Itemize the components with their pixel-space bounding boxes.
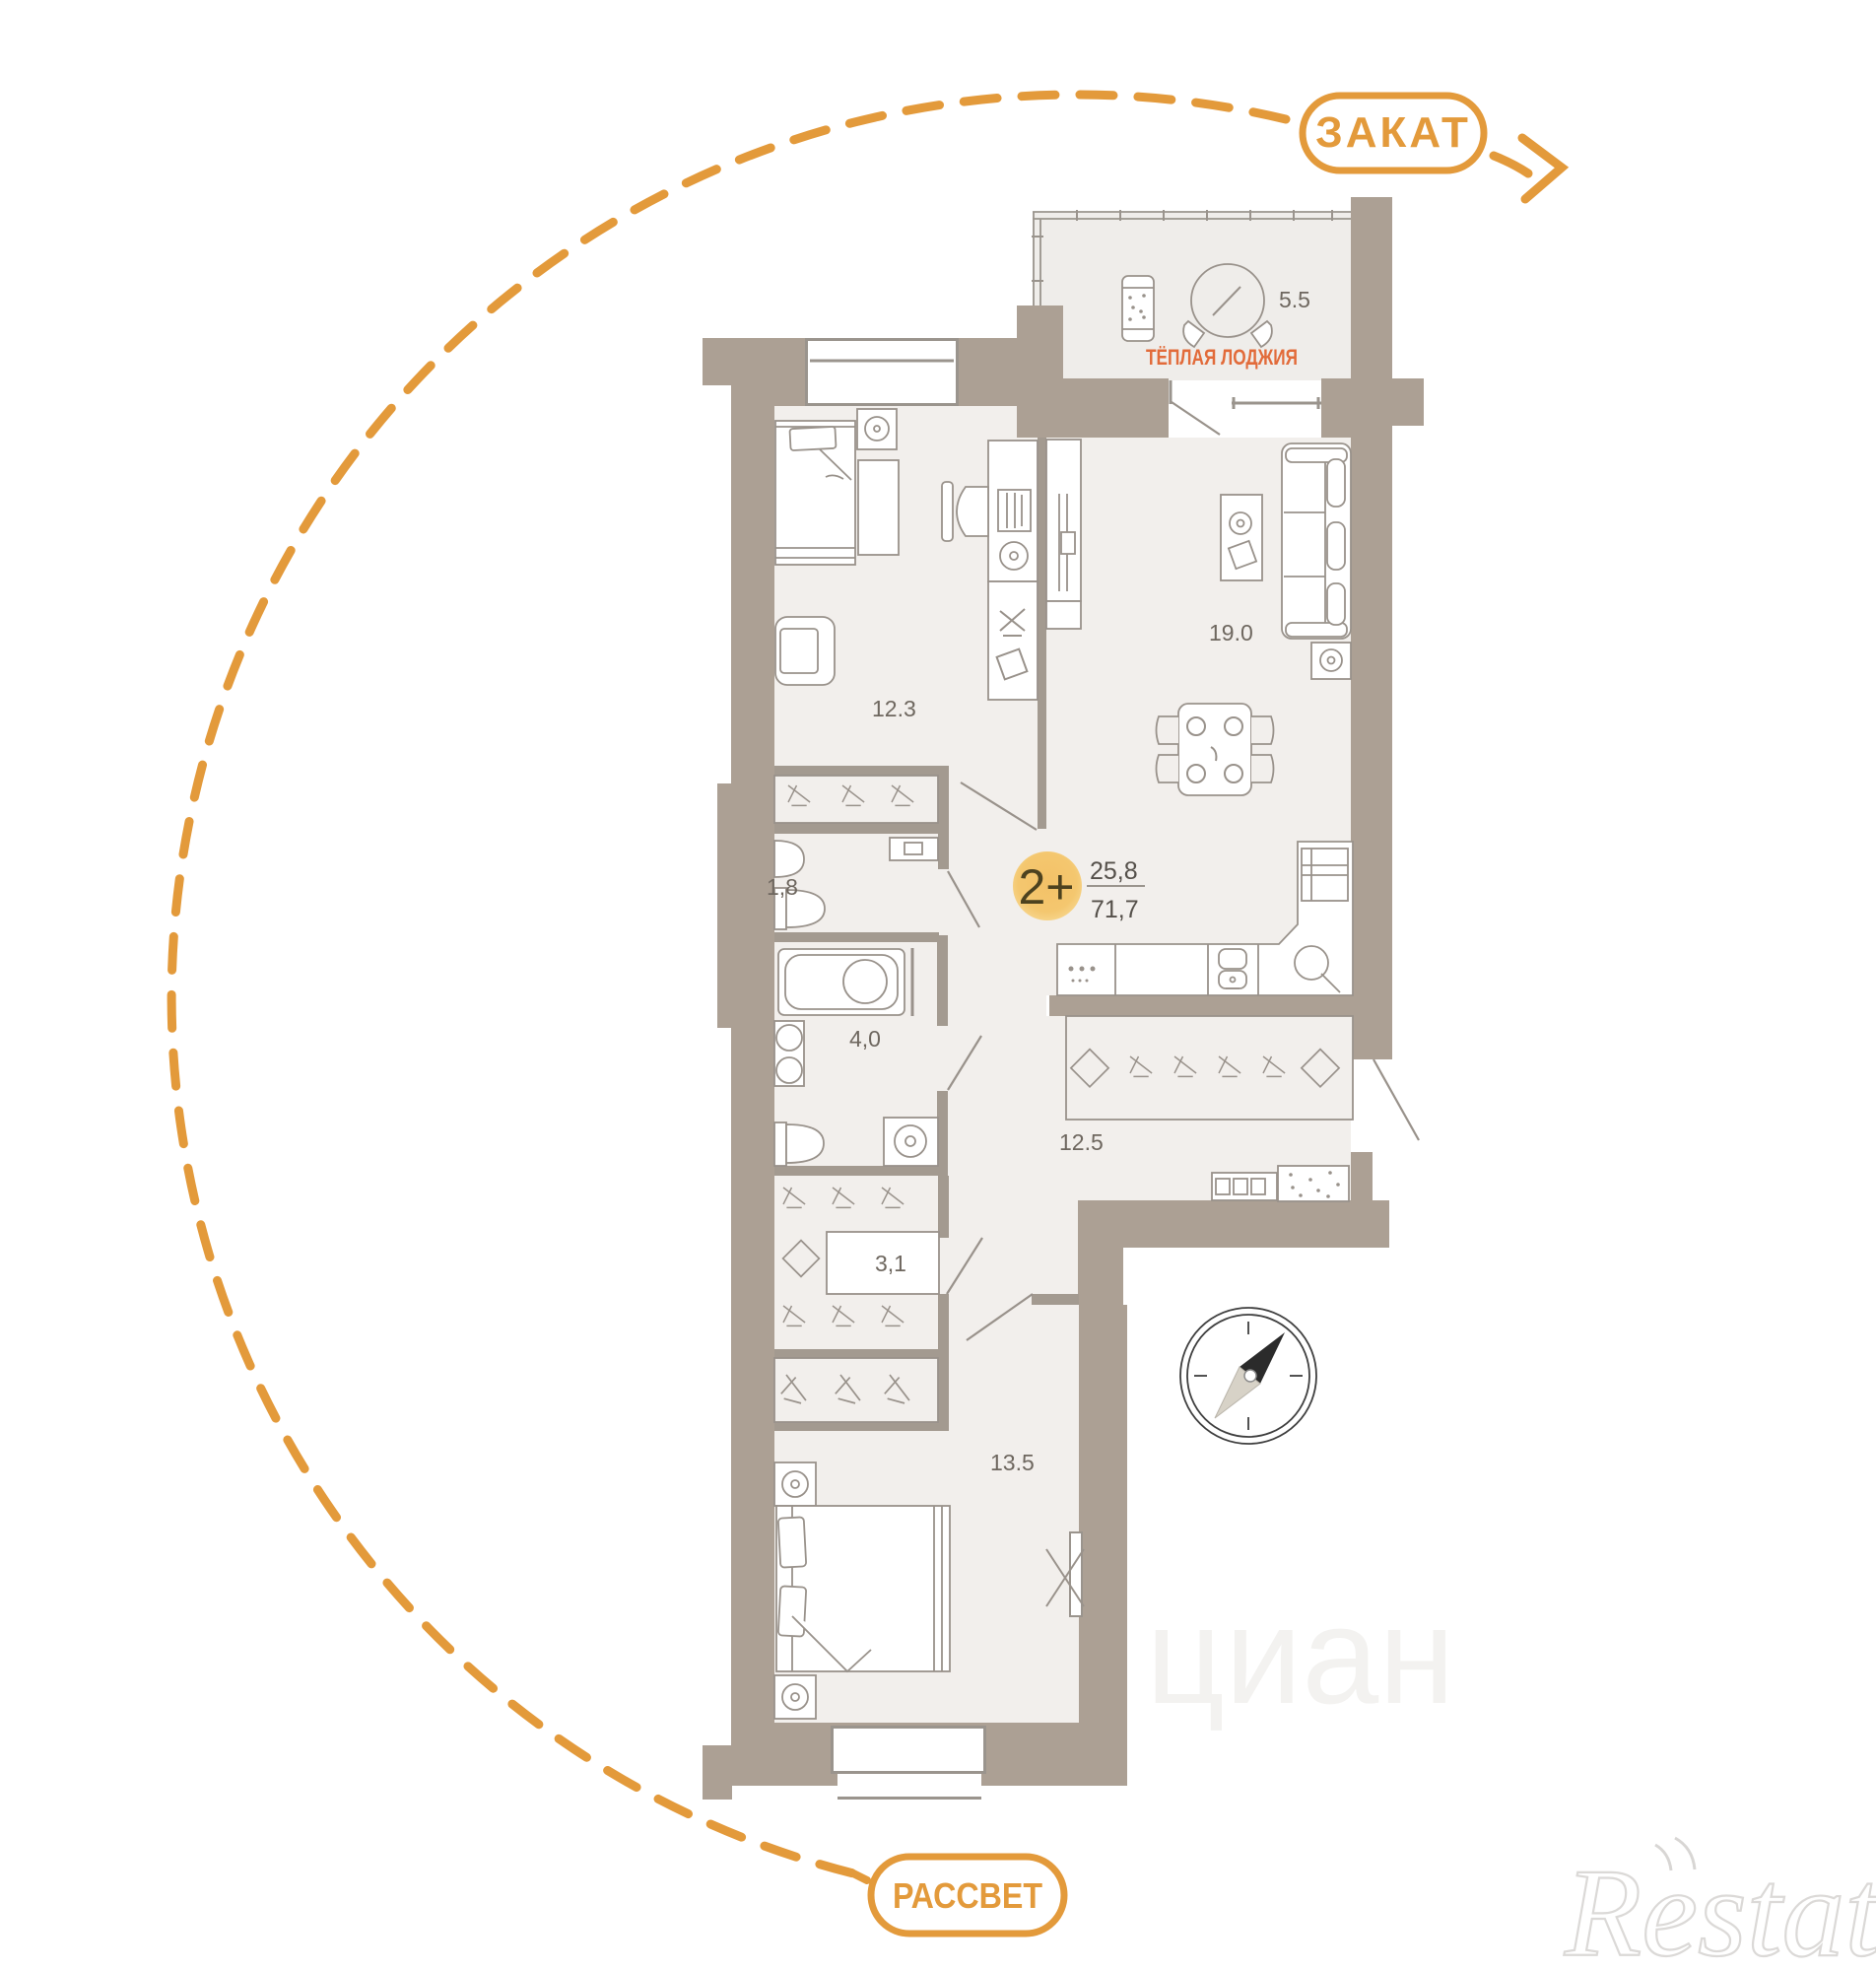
svg-text:ТЁПЛАЯ ЛОДЖИЯ: ТЁПЛАЯ ЛОДЖИЯ [1146, 345, 1298, 370]
svg-text:1,8: 1,8 [767, 874, 798, 900]
svg-text:4,0: 4,0 [849, 1026, 881, 1052]
svg-text:2+: 2+ [1018, 859, 1074, 915]
svg-text:12.5: 12.5 [1059, 1129, 1104, 1155]
svg-text:12.3: 12.3 [872, 696, 916, 721]
svg-text:РАССВЕТ: РАССВЕТ [893, 1875, 1042, 1916]
svg-text:71,7: 71,7 [1091, 896, 1139, 923]
svg-text:13.5: 13.5 [990, 1450, 1035, 1475]
svg-text:5.5: 5.5 [1279, 287, 1310, 312]
svg-text:ЗАКАТ: ЗАКАТ [1315, 108, 1471, 157]
svg-text:Restate: Restate [1564, 1843, 1876, 1971]
svg-text:19.0: 19.0 [1209, 620, 1253, 646]
svg-text:3,1: 3,1 [875, 1251, 906, 1276]
svg-text:циан: циан [1146, 1578, 1455, 1733]
svg-text:25,8: 25,8 [1090, 857, 1138, 885]
